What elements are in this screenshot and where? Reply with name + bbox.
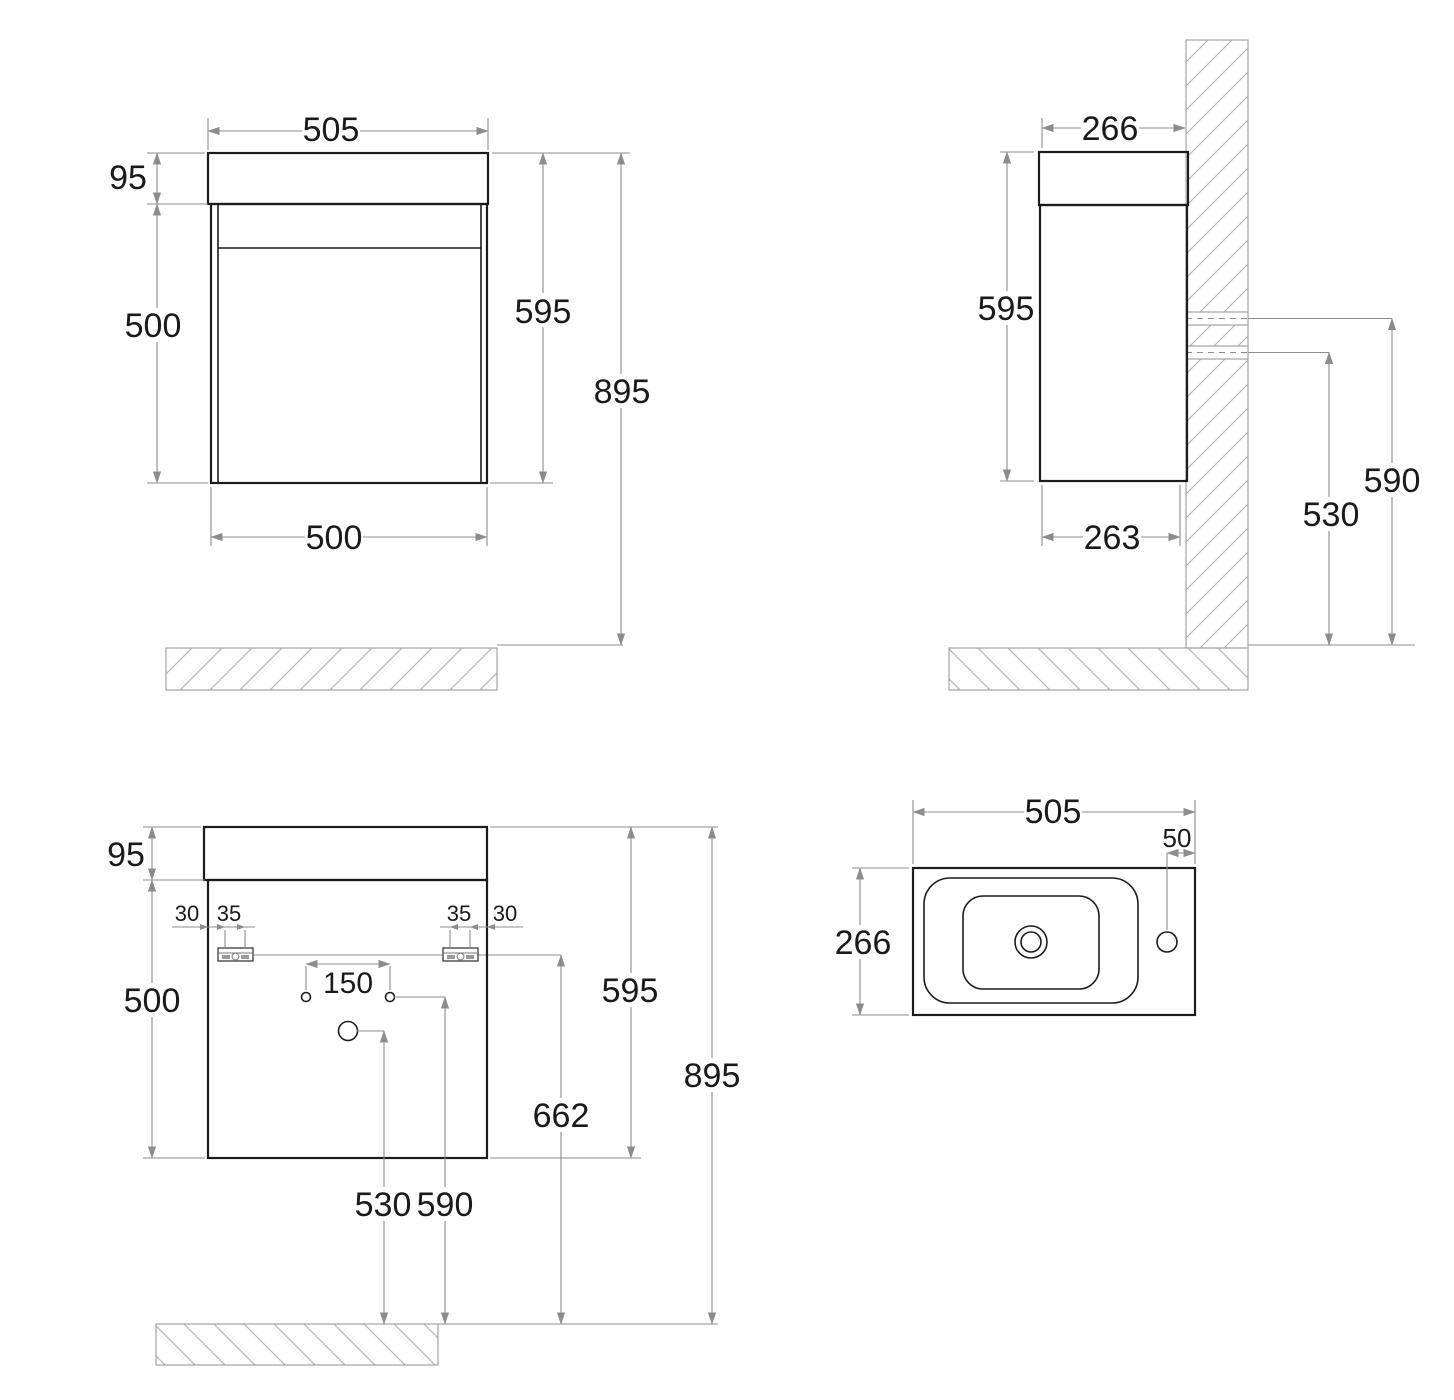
side-upper-fixing-plug <box>1186 312 1248 325</box>
side-dim-lower-fixing-height: 530 <box>1248 353 1360 646</box>
rear-dim-tap-hole-spacing: 150 <box>306 964 390 1000</box>
rear-drain-hole <box>339 1022 358 1041</box>
side-lower-fixing-plug <box>1186 346 1248 359</box>
dim-top-basin-width: 505 <box>1025 793 1082 831</box>
dim-side-lower-fixing-height: 530 <box>1303 496 1360 534</box>
dim-rear-overall-height: 895 <box>684 1057 741 1095</box>
dim-rear-bracket-slot-right: 35 <box>447 901 471 926</box>
dim-rear-drain-height: 530 <box>355 1186 412 1224</box>
side-view: 266 595 263 590 53 <box>949 40 1421 690</box>
side-wall-hatch <box>1186 40 1248 648</box>
rear-dim-basin-height: 95 <box>107 827 205 880</box>
front-view: 505 95 500 500 595 <box>109 111 651 690</box>
dim-front-basin-height: 95 <box>109 159 147 197</box>
rear-dim-fixing-height: 590 <box>394 997 474 1324</box>
rear-view: 95 500 30 35 35 30 <box>107 827 741 1365</box>
rear-dim-rail-height: 662 <box>532 955 590 1324</box>
rear-washbasin <box>204 827 487 880</box>
dim-front-basin-width: 505 <box>303 111 360 149</box>
rear-dim-bracket-left: 30 35 <box>172 901 255 948</box>
front-dim-overall-height: 895 <box>593 153 651 645</box>
front-dim-basin-height: 95 <box>109 153 208 204</box>
rear-floor-hatch <box>156 1324 438 1365</box>
dim-front-cabinet-width: 500 <box>306 519 363 557</box>
technical-drawing-page: 505 95 500 500 595 <box>0 0 1454 1400</box>
dim-side-unit-height: 595 <box>978 290 1035 328</box>
side-washbasin <box>1039 152 1188 205</box>
dim-top-basin-depth: 266 <box>835 924 892 962</box>
top-dim-basin-width: 505 <box>913 793 1195 864</box>
rear-tap-hole-left <box>302 993 311 1002</box>
top-tap-hole <box>1157 932 1177 952</box>
dim-rear-edge-offset-right: 30 <box>493 901 517 926</box>
rear-bracket-left <box>218 948 253 961</box>
top-dim-basin-depth: 266 <box>834 868 909 1015</box>
side-dim-depth: 266 <box>1042 110 1185 148</box>
dim-front-overall-height: 895 <box>594 373 651 411</box>
dim-rear-cabinet-height: 500 <box>124 982 181 1020</box>
front-floor-hatch <box>166 648 497 690</box>
rear-tap-hole-right <box>386 993 395 1002</box>
front-dim-cabinet-width: 500 <box>211 487 487 557</box>
front-dim-basin-width: 505 <box>208 111 488 150</box>
rear-dim-bracket-right: 35 30 <box>440 901 523 948</box>
dim-side-upper-fixing-height: 590 <box>1364 462 1421 500</box>
side-cabinet <box>1040 205 1187 481</box>
dim-rear-rail-height: 662 <box>533 1097 590 1135</box>
dim-side-depth: 266 <box>1082 110 1139 148</box>
top-drain-inner <box>1021 932 1041 952</box>
rear-dim-overall-height: 895 <box>683 827 741 1324</box>
dim-top-tap-hole-edge-offset: 50 <box>1163 823 1192 853</box>
side-dim-upper-fixing-height: 590 <box>1248 319 1421 646</box>
front-dim-cabinet-height: 500 <box>124 204 208 483</box>
top-basin-bowl <box>963 896 1099 989</box>
dim-front-cabinet-height: 500 <box>125 307 182 345</box>
dim-front-unit-height: 595 <box>515 293 572 331</box>
dim-rear-unit-height: 595 <box>602 972 659 1010</box>
top-washbasin-outline <box>913 868 1195 1015</box>
dim-rear-tap-hole-spacing: 150 <box>323 967 373 1000</box>
rear-bracket-right <box>443 948 478 961</box>
top-drain-outer <box>1015 926 1047 958</box>
rear-dim-drain-height: 530 <box>354 1031 412 1324</box>
side-dim-cabinet-depth: 263 <box>1042 485 1180 557</box>
side-floor-hatch <box>949 648 1248 690</box>
rear-dim-unit-height: 595 <box>490 827 718 1158</box>
dim-rear-edge-offset-left: 30 <box>175 901 199 926</box>
top-dim-tap-hole-edge-offset: 50 <box>1163 823 1195 930</box>
dim-side-cabinet-depth: 263 <box>1084 519 1141 557</box>
front-dim-unit-height: 595 <box>490 153 630 483</box>
front-washbasin <box>208 153 488 204</box>
front-cabinet <box>211 204 487 483</box>
vanity-unit-technical-drawing: 505 95 500 500 595 <box>0 0 1454 1400</box>
side-dim-unit-height: 595 <box>977 152 1035 481</box>
top-view: 505 50 266 <box>834 793 1195 1015</box>
dim-rear-bracket-slot-left: 35 <box>217 901 241 926</box>
dim-rear-basin-height: 95 <box>107 836 145 874</box>
dim-rear-fixing-height: 590 <box>417 1186 474 1224</box>
